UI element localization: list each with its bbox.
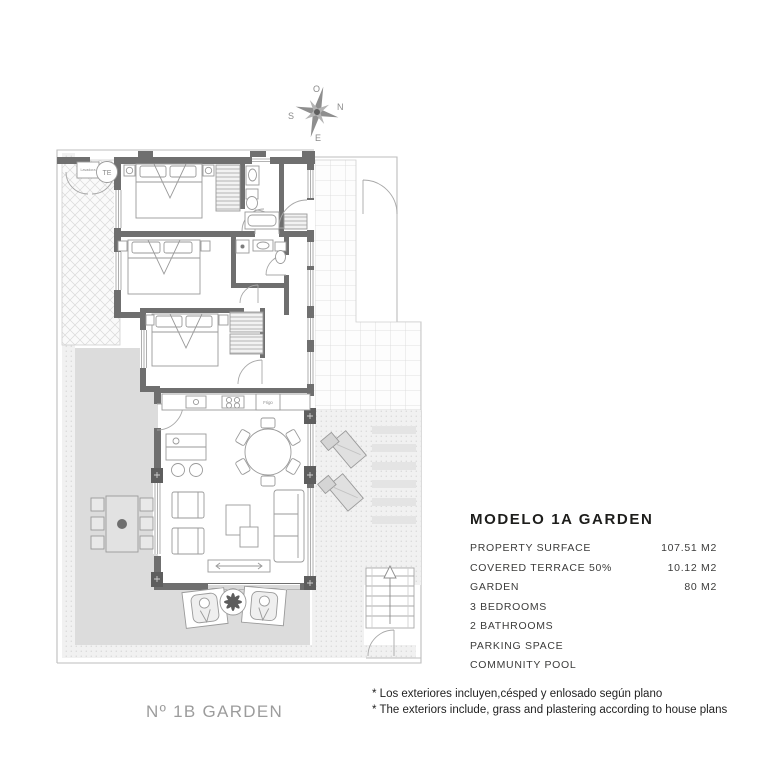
armchair xyxy=(172,492,204,518)
stool xyxy=(190,464,203,477)
compass-rose: O N S E xyxy=(288,81,345,143)
spec-value: 80 M2 xyxy=(684,578,717,598)
wardrobe-1 xyxy=(216,165,240,211)
spec-row: COVERED TERRACE 50% 10.12 M2 xyxy=(470,559,717,579)
bedroom-1 xyxy=(124,164,240,218)
entry-cabinet xyxy=(284,214,307,229)
fridge-label: Frigo xyxy=(263,400,273,405)
spec-panel: MODELO 1A GARDEN PROPERTY SURFACE 107.51… xyxy=(470,511,717,676)
dining-set xyxy=(235,418,301,486)
bathroom-2 xyxy=(236,240,286,264)
spec-label: GARDEN xyxy=(470,578,519,598)
washer-label: Lavadora xyxy=(81,168,96,172)
plan-title: MODELO 1A GARDEN xyxy=(470,511,717,528)
bathroom-1 xyxy=(245,166,307,229)
spec-value: 107.51 M2 xyxy=(661,539,717,559)
compass-south-label: S xyxy=(288,111,294,121)
wardrobe-3a xyxy=(230,312,263,332)
unit-label: Nº 1B GARDEN xyxy=(146,702,283,722)
spec-label: 2 BATHROOMS xyxy=(470,617,553,637)
bedroom-2 xyxy=(118,240,210,294)
spec-label: COMMUNITY POOL xyxy=(470,656,576,676)
spec-row: COMMUNITY POOL xyxy=(470,656,717,676)
exterior-stairs xyxy=(366,566,421,658)
floorplan-page: Lavadora TE Frigo xyxy=(0,0,780,780)
spec-row: PROPERTY SURFACE 107.51 M2 xyxy=(470,539,717,559)
spec-row: 2 BATHROOMS xyxy=(470,617,717,637)
compass-east-label: E xyxy=(315,133,321,143)
side-table xyxy=(240,527,258,547)
spec-label: COVERED TERRACE 50% xyxy=(470,559,612,579)
spec-label: PROPERTY SURFACE xyxy=(470,539,591,559)
footnote-spanish: * Los exteriores incluyen,césped y enlos… xyxy=(372,686,727,702)
wardrobe-3b xyxy=(230,334,263,354)
spec-label: 3 BEDROOMS xyxy=(470,598,547,618)
armchair xyxy=(172,528,204,554)
stool xyxy=(172,464,185,477)
compass-north-label: N xyxy=(337,102,344,112)
garden-dining xyxy=(91,496,153,552)
dining-table xyxy=(245,429,291,475)
spec-row: GARDEN 80 M2 xyxy=(470,578,717,598)
compass-west-label: O xyxy=(313,84,320,94)
sofa xyxy=(274,490,304,562)
laundry-patio xyxy=(62,160,120,345)
spec-value: 10.12 M2 xyxy=(668,559,717,579)
water-heater-label: TE xyxy=(103,170,112,177)
palm-plant xyxy=(220,589,246,615)
parasol xyxy=(117,519,127,529)
entry-patio-tiles xyxy=(312,160,421,410)
spec-row: PARKING SPACE xyxy=(470,637,717,657)
spec-label: PARKING SPACE xyxy=(470,637,563,657)
footnote-english: * The exteriors include, grass and plast… xyxy=(372,702,727,718)
bedroom-3 xyxy=(146,312,263,366)
living-room xyxy=(172,490,304,572)
footnotes: * Los exteriores incluyen,césped y enlos… xyxy=(372,686,727,718)
spec-row: 3 BEDROOMS xyxy=(470,598,717,618)
